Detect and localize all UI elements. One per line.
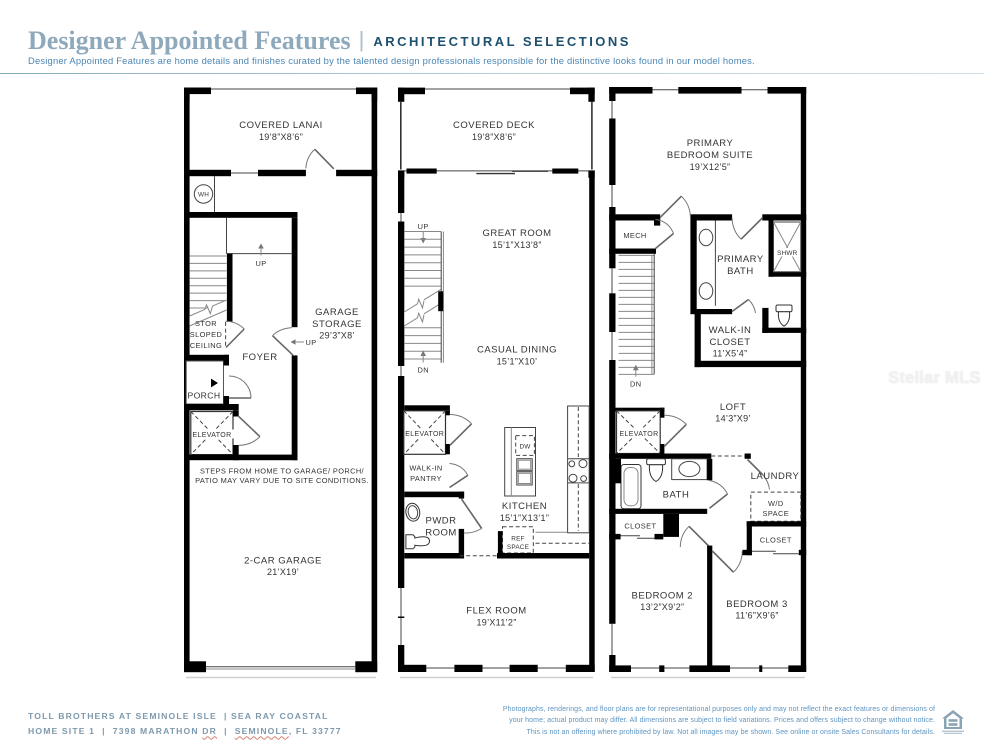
svg-text:UP: UP xyxy=(418,222,429,231)
svg-text:13’2”X9’2”: 13’2”X9’2” xyxy=(640,602,684,612)
svg-text:19’X11’2”: 19’X11’2” xyxy=(476,618,516,628)
svg-text:PRIMARY: PRIMARY xyxy=(717,254,764,265)
svg-text:LAUNDRY: LAUNDRY xyxy=(751,471,800,482)
svg-text:WALK-IN: WALK-IN xyxy=(409,464,442,473)
svg-text:SHWR: SHWR xyxy=(777,250,798,257)
svg-text:2-CAR GARAGE: 2-CAR GARAGE xyxy=(244,556,322,567)
svg-text:ELEVATOR: ELEVATOR xyxy=(405,431,444,438)
svg-text:WH: WH xyxy=(198,192,209,199)
svg-text:19’8”X8’6”: 19’8”X8’6” xyxy=(259,132,303,142)
svg-text:PRIMARY: PRIMARY xyxy=(687,138,734,149)
svg-text:CLOSET: CLOSET xyxy=(709,337,750,348)
svg-text:ELEVATOR: ELEVATOR xyxy=(193,432,232,439)
svg-text:KITCHEN: KITCHEN xyxy=(502,501,547,512)
svg-text:SPACE: SPACE xyxy=(507,544,529,551)
svg-text:COVERED DECK: COVERED DECK xyxy=(453,120,535,131)
svg-text:PATIO MAY VARY DUE TO SITE CON: PATIO MAY VARY DUE TO SITE CONDITIONS. xyxy=(195,476,369,485)
svg-text:DW: DW xyxy=(519,444,531,451)
svg-text:19’X12’5”: 19’X12’5” xyxy=(690,162,731,172)
svg-text:DN: DN xyxy=(417,366,428,375)
svg-text:STEPS FROM HOME TO GARAGE/ POR: STEPS FROM HOME TO GARAGE/ PORCH/ xyxy=(200,467,365,476)
svg-text:11’X5’4”: 11’X5’4” xyxy=(713,349,748,359)
svg-text:CLOSET: CLOSET xyxy=(760,536,792,545)
svg-text:29’3”X8’: 29’3”X8’ xyxy=(319,331,354,341)
svg-text:15’1”X13’1”: 15’1”X13’1” xyxy=(500,513,549,523)
svg-text:BATH: BATH xyxy=(727,266,754,277)
svg-text:BEDROOM 2: BEDROOM 2 xyxy=(632,591,694,602)
svg-text:CASUAL DINING: CASUAL DINING xyxy=(477,345,557,356)
svg-text:SPACE: SPACE xyxy=(763,509,790,518)
svg-text:STOR: STOR xyxy=(195,319,217,328)
svg-text:ROOM: ROOM xyxy=(425,528,457,539)
svg-text:PORCH: PORCH xyxy=(187,391,220,401)
svg-text:REF: REF xyxy=(511,536,524,543)
svg-text:BEDROOM 3: BEDROOM 3 xyxy=(726,599,788,610)
svg-text:11’6”X9’6”: 11’6”X9’6” xyxy=(735,611,778,621)
svg-text:PANTRY: PANTRY xyxy=(410,474,442,483)
svg-text:15’1”X13’8”: 15’1”X13’8” xyxy=(492,240,541,250)
svg-text:UP: UP xyxy=(255,259,266,268)
svg-text:SLOPED: SLOPED xyxy=(190,330,222,339)
svg-text:GARAGE: GARAGE xyxy=(315,307,359,318)
svg-text:WALK-IN: WALK-IN xyxy=(709,325,752,336)
svg-text:PWDR: PWDR xyxy=(425,516,456,527)
svg-text:15’1”X10’: 15’1”X10’ xyxy=(497,357,538,367)
svg-text:COVERED LANAI: COVERED LANAI xyxy=(239,120,323,131)
svg-text:STORAGE: STORAGE xyxy=(312,319,362,330)
svg-text:21’X19’: 21’X19’ xyxy=(267,567,299,577)
svg-text:W/D: W/D xyxy=(768,499,784,508)
svg-text:14’3”X9’: 14’3”X9’ xyxy=(715,414,750,424)
svg-text:DN: DN xyxy=(630,380,641,389)
svg-text:BATH: BATH xyxy=(663,490,690,501)
svg-text:19’8”X8’6”: 19’8”X8’6” xyxy=(472,132,516,142)
svg-text:GREAT ROOM: GREAT ROOM xyxy=(482,228,551,239)
svg-text:MECH: MECH xyxy=(623,231,646,240)
svg-text:BEDROOM SUITE: BEDROOM SUITE xyxy=(667,150,753,161)
svg-text:FLEX ROOM: FLEX ROOM xyxy=(466,606,526,617)
svg-text:CLOSET: CLOSET xyxy=(624,522,656,531)
svg-text:CEILING: CEILING xyxy=(190,341,222,350)
svg-text:UP: UP xyxy=(305,338,316,347)
svg-text:FOYER: FOYER xyxy=(242,352,277,363)
svg-text:ELEVATOR: ELEVATOR xyxy=(620,431,659,438)
svg-text:LOFT: LOFT xyxy=(720,402,746,413)
